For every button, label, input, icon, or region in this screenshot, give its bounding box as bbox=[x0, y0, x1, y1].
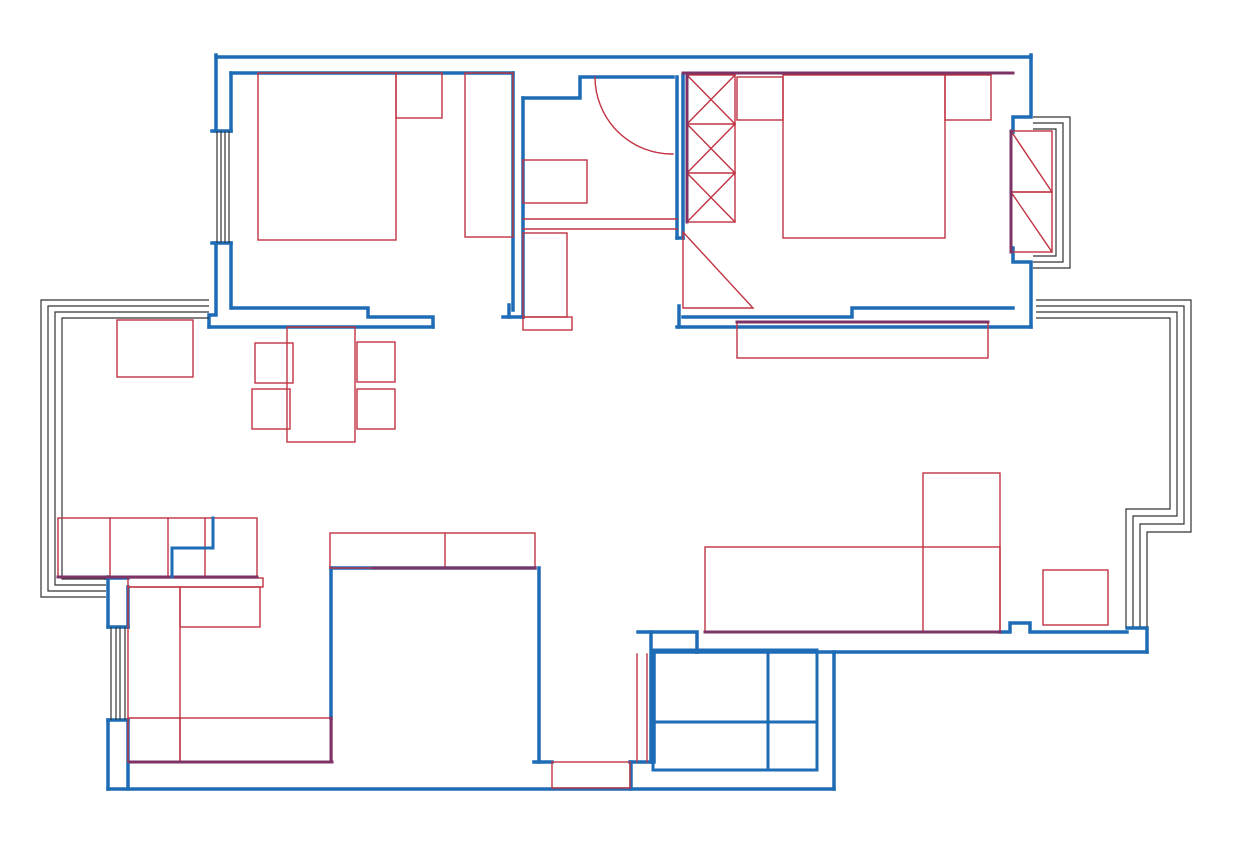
walls-layer bbox=[108, 55, 1147, 789]
dining-chair-top-right bbox=[357, 342, 395, 382]
wall-segment-4 bbox=[233, 308, 433, 327]
side-table bbox=[1043, 570, 1108, 625]
kitchen-appliance bbox=[180, 587, 260, 627]
windows-and-railings-layer bbox=[41, 117, 1191, 720]
wall-furniture-overlap-layer bbox=[58, 73, 1013, 762]
furniture-line-15 bbox=[1011, 131, 1052, 192]
bench-block bbox=[58, 518, 257, 577]
furniture-line-16 bbox=[1011, 192, 1052, 252]
corridor-cabinet-band bbox=[330, 533, 535, 568]
dining-table bbox=[287, 327, 355, 442]
dining-chair-bottom-left bbox=[252, 389, 290, 429]
entry-threshold bbox=[552, 762, 630, 788]
blue-fixtures-layer bbox=[172, 518, 817, 770]
floor-plan-page bbox=[0, 0, 1239, 849]
nightstand-right-bedroom-right bbox=[945, 75, 991, 120]
blue-fixture-0 bbox=[172, 518, 213, 577]
sofa bbox=[705, 547, 1000, 632]
kitchen-counter-bottom bbox=[180, 718, 332, 762]
bed-right-bedroom bbox=[783, 75, 945, 238]
wall-segment-29 bbox=[1127, 628, 1147, 652]
balcony-railing-line-6 bbox=[1036, 312, 1177, 627]
bed-left-bedroom bbox=[258, 73, 396, 240]
wall-segment-18 bbox=[1013, 248, 1031, 327]
floor-plan-canvas bbox=[0, 0, 1239, 849]
side-cabinet-bay bbox=[117, 320, 193, 377]
balcony-railing-line-7 bbox=[1036, 318, 1170, 627]
bathroom-cabinet bbox=[523, 160, 587, 203]
nightstand-left-bedroom bbox=[396, 73, 442, 118]
balcony-railing-line-5 bbox=[1036, 306, 1184, 627]
kitchen-counter-band bbox=[128, 578, 263, 587]
hall-tall-cabinet bbox=[523, 233, 567, 317]
furniture-line-19 bbox=[595, 77, 673, 154]
balcony-railing-line-0 bbox=[41, 300, 209, 597]
nightstand-right-bedroom-left bbox=[737, 77, 783, 120]
wall-segment-2 bbox=[209, 243, 216, 327]
dining-chair-bottom-right bbox=[357, 389, 395, 429]
balcony-railing-line-2 bbox=[55, 312, 209, 585]
wall-segment-15 bbox=[683, 308, 1013, 317]
balcony-railing-line-4 bbox=[1036, 300, 1191, 627]
kitchen-counter-left bbox=[128, 587, 180, 762]
wardrobe-left-bedroom bbox=[465, 73, 513, 237]
hall-small-cabinet bbox=[523, 317, 572, 330]
furniture-line-20 bbox=[683, 232, 753, 308]
wall-segment-17 bbox=[1013, 55, 1031, 132]
furniture-layer bbox=[58, 73, 1108, 788]
balcony-railing-line-3 bbox=[62, 318, 209, 579]
wall-segment-10 bbox=[523, 77, 673, 98]
blue-fixture-1 bbox=[653, 650, 817, 770]
sofa-chaise bbox=[923, 473, 1000, 632]
